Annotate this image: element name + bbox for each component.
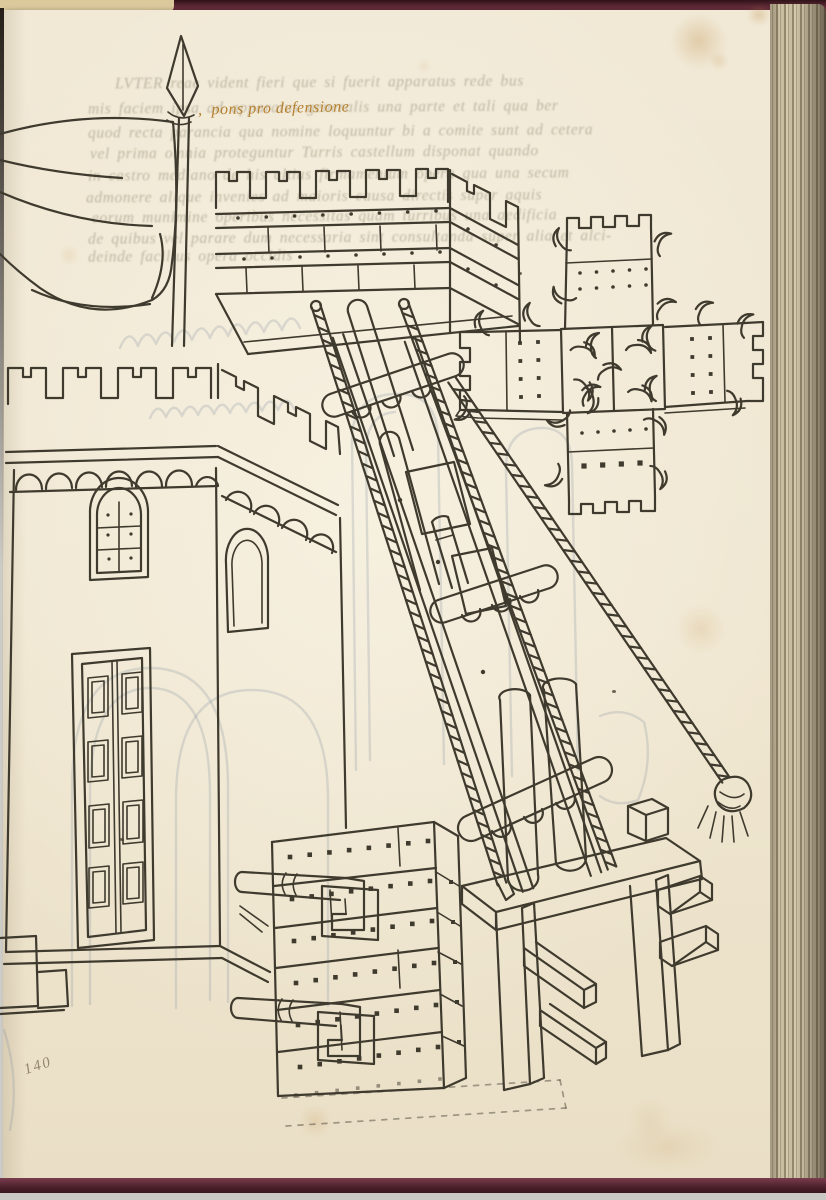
caption-mark: , xyxy=(198,101,203,119)
panelled-door xyxy=(72,648,154,948)
book-photograph: LVTER reae vident fieri que si fuerit ap… xyxy=(0,0,826,1200)
rubric-caption: , pons pro defensione xyxy=(198,98,350,119)
rope-tassel xyxy=(698,777,751,842)
caption-text: pons pro defensione xyxy=(211,98,349,119)
extension-bridge-figure xyxy=(311,299,751,900)
ink-drawing xyxy=(0,0,826,1200)
tassel-rope xyxy=(448,377,729,782)
arched-window-shuttered xyxy=(90,478,148,580)
arched-window-plain xyxy=(226,529,268,632)
bridge-plan-cross-figure xyxy=(455,215,763,514)
studded-pier-figure xyxy=(231,822,566,1126)
banner-flag-figure xyxy=(0,36,198,346)
castle-tower-figure xyxy=(0,364,346,1014)
scalloped-collar-middle xyxy=(430,565,557,622)
grappling-hooks xyxy=(455,228,754,491)
